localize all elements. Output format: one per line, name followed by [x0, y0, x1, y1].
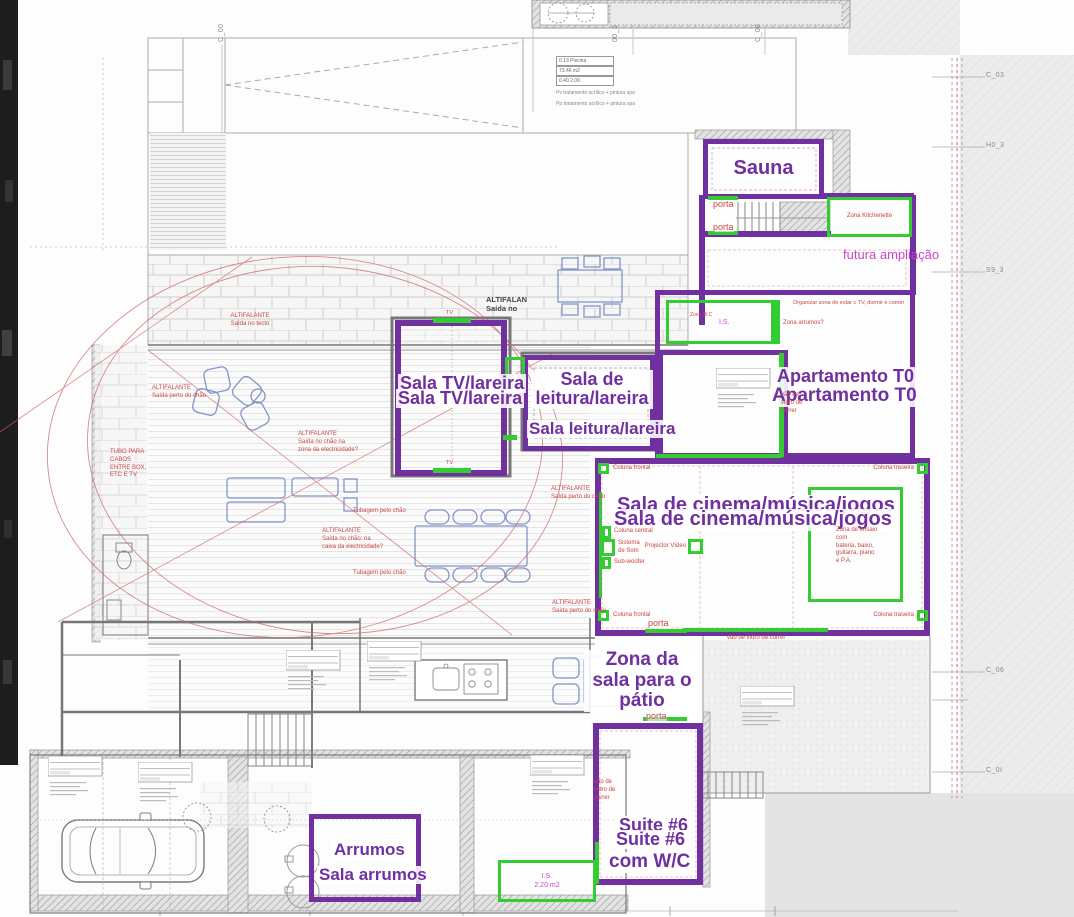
- note-tubo-cabos: TUBO PARA CABOS ENTRE BOX, ETC E TV: [110, 449, 146, 480]
- ref-mark-right-2: H0_3: [986, 142, 1004, 149]
- room-label-zona-sala: Zona da sala para o pátio: [584, 650, 700, 712]
- room-label-sala-leitura: Sala leitura/lareira: [527, 420, 677, 438]
- ref-mark-right-5: C_0I: [986, 767, 1002, 774]
- note-coluna-frontal-b: Coluna frontal: [613, 612, 650, 620]
- porta-bar-3: [645, 629, 687, 633]
- pool-legend: 0.13 Piscina 73.46 m2 0.40 2.00 Pv trata…: [556, 56, 635, 108]
- room-label-suite6-dup: Suite #6: [614, 830, 687, 849]
- note-porta-1: porta: [713, 200, 734, 209]
- note-altifalante-caixa: ALTIFALANTE Saída no chão: na caixa da e…: [322, 528, 383, 551]
- pool-legend-dims: 0.40 2.00: [556, 76, 614, 86]
- leitura-green-tick: [503, 435, 517, 440]
- note-zona-ensaio: Zona de ensaio com bateria, baixo, guita…: [836, 527, 877, 566]
- suite-is-label: I.S.: [542, 872, 553, 881]
- suite-is-outline: I.S. 2.20 m2: [498, 860, 596, 902]
- cinema-green-bar-top: [656, 454, 782, 458]
- coluna-frontal-box-tl: [598, 463, 609, 474]
- note-tv-bottom: TV: [446, 460, 453, 467]
- tv-mark-bottom: [433, 468, 471, 473]
- coluna-traseira-box-br: [917, 610, 928, 621]
- room-label-sala-leitura-2l: Sala de leitura/lareira: [531, 370, 653, 409]
- car: [62, 813, 204, 889]
- apartamento-t0-room-outline: [658, 350, 788, 460]
- pool-legend-note-2: Pp tratamento acrílico + pintura spa: [556, 101, 635, 108]
- note-coluna-frontal-t: Coluna frontal: [613, 465, 650, 473]
- kitchen-island: [415, 660, 507, 700]
- sauna-room-outline: Sauna: [703, 139, 824, 199]
- note-vao-correr-v1: vão de vidro de correr: [781, 392, 802, 415]
- note-sistema-som: Sistema de Som: [618, 540, 640, 556]
- ref-mark-right-3: S9_3: [986, 267, 1004, 274]
- note-porta-4: porta: [646, 712, 667, 721]
- room-label-sala-arrumos: Sala arrumos: [317, 866, 429, 884]
- photo-strip: [0, 0, 18, 765]
- kitchenette-label: Zona Kitchenette: [847, 213, 892, 221]
- room-label-arrumos: Arrumos: [332, 841, 407, 859]
- note-porta-3: porta: [648, 619, 669, 628]
- ref-mark-top-1: C_00: [218, 24, 225, 42]
- note-altifalante-saida: ALTIFALAN Saída no: [486, 295, 527, 313]
- room-label-sala-tv-dup: Sala TV/lareira: [396, 389, 524, 408]
- room-label-apartamento-t0: Apartamento T0: [775, 367, 916, 386]
- note-altifalante-zona: ALTIFALANTE Saída no chão na zona da ele…: [298, 431, 358, 454]
- note-altifalante-perto-2: ALTIFALANTE Saída perto do chão: [551, 486, 605, 502]
- pool-legend-name: 0.13 Piscina: [556, 56, 614, 66]
- tv-mark-top: [433, 318, 471, 323]
- t0-wc-green-strip: [771, 302, 780, 342]
- note-coluna-traseira-t: Coluna traseira: [856, 465, 914, 473]
- projector-box: [688, 539, 703, 554]
- note-coluna-traseira-b: Coluna traseira: [856, 612, 914, 620]
- room-label-sauna: Sauna: [731, 158, 795, 180]
- note-t0-is: I.S.: [719, 318, 730, 327]
- ref-mark-top-3: C_08: [755, 24, 762, 42]
- sistema-som-box: [601, 539, 615, 556]
- note-zona-arrumos: Zona arrumos?: [783, 320, 824, 328]
- coluna-traseira-box-tr: [917, 463, 928, 474]
- subwoofer-box: [602, 557, 611, 569]
- note-tv-top: TV: [446, 310, 453, 317]
- ref-mark-right-4: C_06: [986, 667, 1004, 674]
- note-tubagem-2: Tubagem pelo chão: [353, 570, 406, 578]
- pool-legend-area: 73.46 m2: [556, 66, 614, 76]
- suite-is-area: 2.20 m2: [534, 881, 559, 890]
- ref-mark-right-1: C_03: [986, 72, 1004, 79]
- note-projector: Projector Vídeo: [642, 543, 686, 551]
- note-tubagem-1: Tubagem pelo chão: [353, 508, 406, 516]
- note-vao-correr-v2: vão de vidro de correr: [594, 779, 615, 802]
- note-altifalante-perto-1: ALTIFALANTE Saída perto do chão: [152, 385, 206, 401]
- note-subwoofer: Sub-woofer: [614, 559, 645, 567]
- label-futura-ampliacao: futura ampliação: [843, 247, 939, 264]
- cinema-green-bar-bottom: [683, 628, 828, 632]
- floorplan-canvas: Sauna Zona Kitchenette I.S. 2.20 m2 Sala…: [0, 0, 1074, 917]
- note-vao-correr-h: vão de vidro de correr: [727, 635, 785, 643]
- note-porta-2: porta: [713, 223, 734, 232]
- note-altifalante-perto-3: ALTIFALANTE Saída perto do chão: [552, 600, 606, 616]
- note-zona-wc: Zona W.C: [690, 312, 712, 319]
- kitchenette-zone-outline: Zona Kitchenette: [827, 197, 912, 237]
- ref-mark-top-2: 00_3: [612, 25, 619, 42]
- pool-legend-note-1: Pv tratamento acrílico + pintura spa: [556, 90, 635, 97]
- note-coluna-central: Coluna central: [614, 528, 653, 536]
- coluna-central-box: [602, 526, 611, 539]
- note-organizar: Organizar zona de estar c TV, dormir e c…: [793, 300, 904, 307]
- suite-green-edge: [595, 842, 599, 884]
- room-label-suite6-wc: com W/C: [607, 852, 692, 873]
- note-altifalante-tecto: ALTIFALANTE Saída no tecto: [205, 313, 295, 329]
